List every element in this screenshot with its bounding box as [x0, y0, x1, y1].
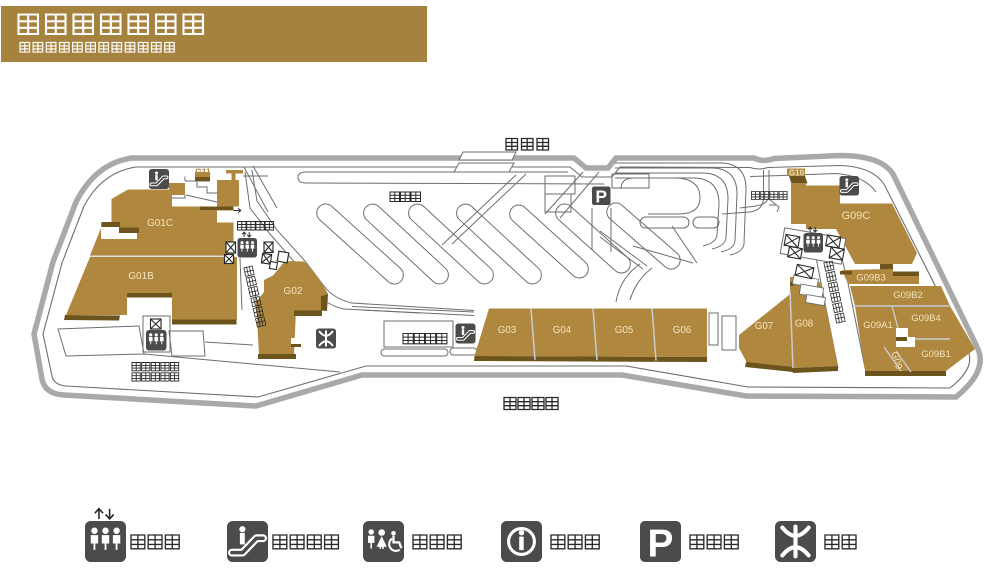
- svg-text:P: P: [648, 522, 674, 565]
- svg-text:G08: G08: [795, 319, 814, 330]
- svg-text:P: P: [595, 186, 607, 206]
- svg-text:G09B3: G09B3: [856, 273, 886, 284]
- svg-text:G06: G06: [673, 325, 692, 336]
- svg-text:G02: G02: [284, 286, 303, 297]
- svg-text:G09C: G09C: [842, 210, 871, 222]
- svg-text:G09B1: G09B1: [921, 349, 951, 360]
- svg-text:G11: G11: [195, 167, 211, 177]
- svg-text:G09B4: G09B4: [911, 313, 941, 324]
- svg-text:G04: G04: [553, 325, 572, 336]
- svg-text:G09A1: G09A1: [863, 320, 893, 331]
- svg-text:G01B: G01B: [128, 271, 154, 282]
- svg-text:G10: G10: [789, 169, 805, 178]
- svg-text:G03: G03: [498, 325, 517, 336]
- svg-text:G05: G05: [615, 325, 634, 336]
- svg-text:G09B2: G09B2: [893, 290, 923, 301]
- svg-text:G01C: G01C: [147, 218, 173, 229]
- svg-text:G07: G07: [755, 321, 774, 332]
